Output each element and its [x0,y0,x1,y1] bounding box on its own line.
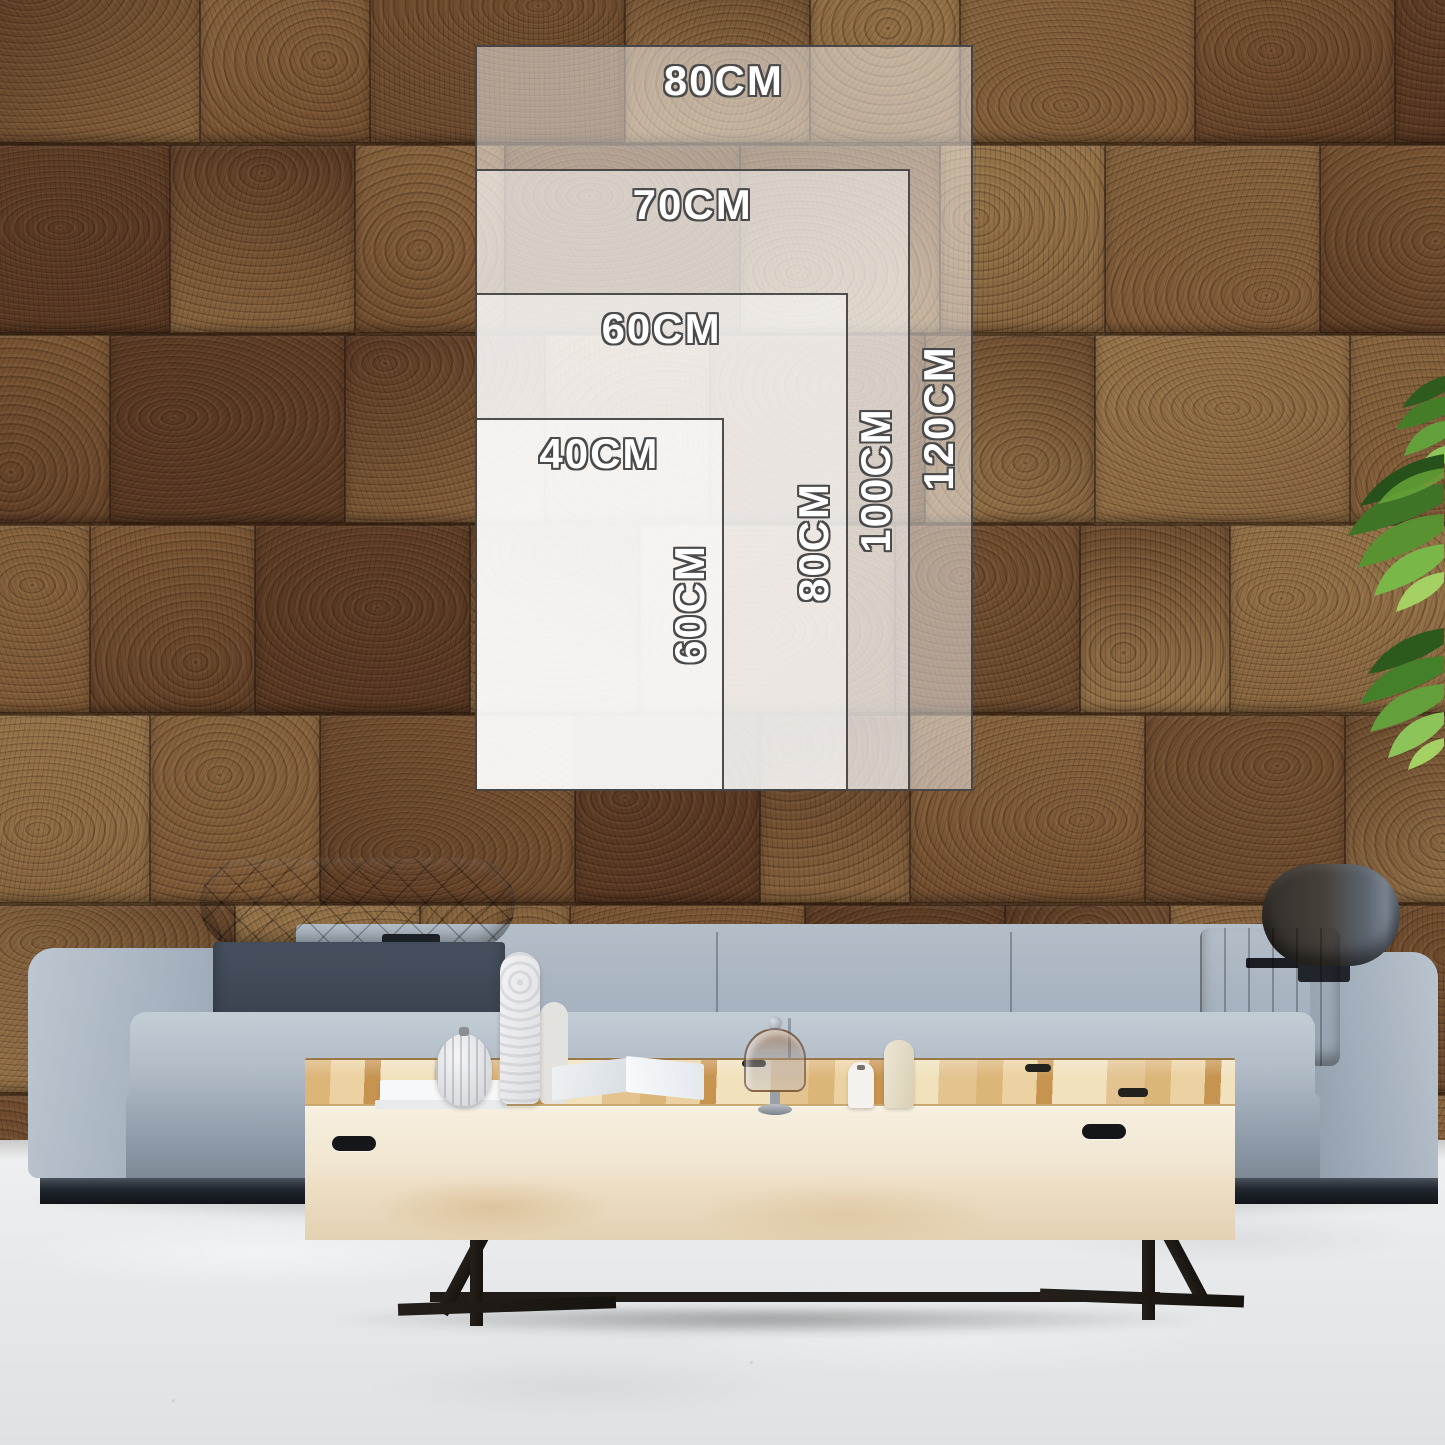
height-label-100cm: 100CM [852,407,900,552]
wood-tile [0,145,170,335]
gourd-vase [436,1034,492,1106]
width-label-80cm: 80CM [477,57,971,105]
width-label-60cm: 60CM [477,305,846,353]
height-label-120cm: 120CM [915,345,963,490]
wood-tile [170,145,355,335]
living-room-scene: 80CM 120CM 70CM 100CM 60CM 80CM 40CM 60C… [0,0,1445,1445]
wood-tile [0,525,90,715]
mini-vase-cream [884,1040,914,1108]
height-label-80cm: 80CM [790,482,838,602]
table-drawer-handle-right [1082,1124,1126,1139]
cloche-dome [744,1028,806,1092]
plant-leaves-bottom [1326,622,1445,772]
table-front-lower [305,1176,1235,1240]
wood-tile [1320,145,1445,335]
left-headrest-roll [200,858,515,950]
cloche-base [758,1104,792,1115]
width-label-70cm: 70CM [477,181,908,229]
wood-tile [1105,145,1320,335]
wood-tile [1195,0,1395,145]
wood-tile [110,335,345,525]
open-book-right-page [626,1056,704,1100]
wood-tile [0,0,200,145]
table-top-slot [1118,1088,1148,1097]
wood-tile [200,0,370,145]
wood-tile [0,335,110,525]
wood-tile [0,715,150,905]
plant-leaves-middle [1312,448,1445,616]
table-top-slot [1025,1064,1051,1072]
table-front-upper [305,1106,1235,1176]
tall-bottle-vase [500,952,540,1104]
wood-tile [960,0,1195,145]
height-label-60cm: 60CM [666,544,714,664]
open-book-left-page [552,1057,632,1101]
size-rect-40x60: 40CM 60CM [475,418,724,791]
wood-tile [255,525,470,715]
wood-tile [90,525,255,715]
wood-tile [1395,0,1445,145]
wood-tile [1080,525,1230,715]
table-drawer-handle-left [332,1136,376,1151]
mini-vase-white [848,1062,874,1108]
open-book [552,1056,704,1100]
glass-cloche [744,1016,806,1116]
width-label-40cm: 40CM [477,430,722,478]
